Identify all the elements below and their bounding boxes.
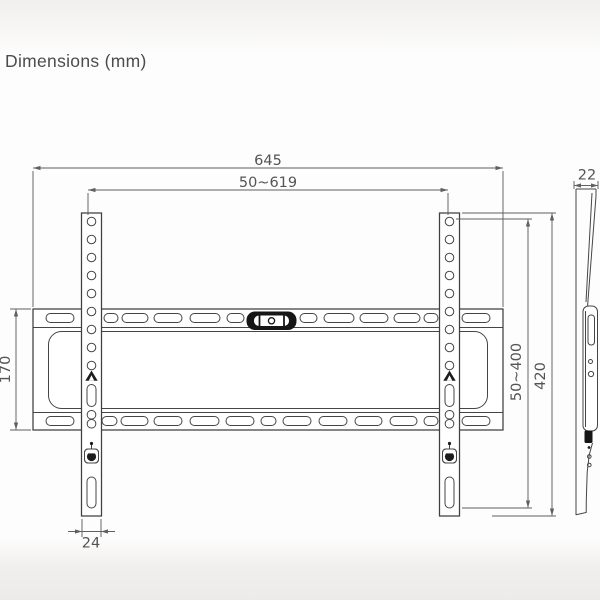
dimensions-diagram-page: Dimensions (mm) [0, 0, 600, 600]
overall-width-label: 645 [254, 153, 282, 169]
dimension-drawing: 645 50~619 170 50~400 [0, 0, 600, 600]
side-lock-icon [585, 431, 593, 444]
side-bottom-taper [576, 443, 593, 515]
side-pin [588, 446, 591, 449]
bracket-width-label: 24 [82, 536, 100, 552]
left-rail [82, 213, 102, 516]
plate-height-label: 170 [0, 356, 14, 384]
profile-depth-label: 22 [578, 168, 596, 184]
spirit-level-icon [247, 312, 297, 331]
bracket-height-label: 420 [533, 362, 549, 390]
dimension-mount-width-range: 50~619 [88, 175, 448, 215]
right-rail [440, 213, 460, 516]
dimension-profile-depth: 22 [574, 168, 598, 190]
dimension-bracket-width: 24 [68, 519, 115, 552]
side-view [576, 189, 598, 515]
mount-height-range-label: 50~400 [509, 343, 525, 401]
front-view [33, 213, 503, 516]
dimension-plate-height: 170 [0, 309, 31, 430]
mount-width-range-label: 50~619 [239, 175, 297, 191]
